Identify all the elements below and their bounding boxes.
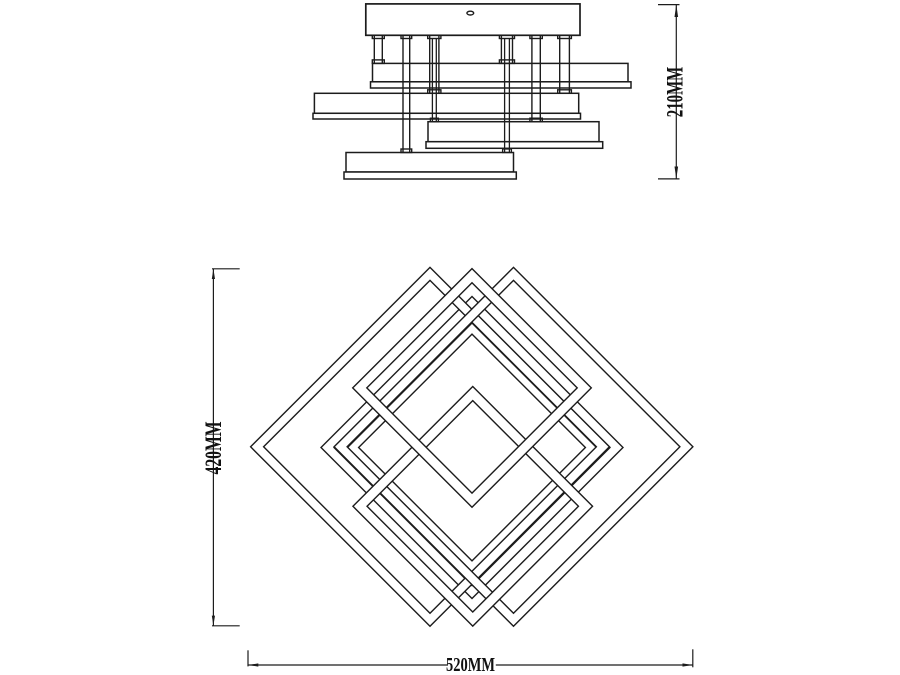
svg-text:420MM: 420MM	[201, 421, 226, 474]
svg-text:520MM: 520MM	[446, 655, 495, 675]
svg-text:210MM: 210MM	[663, 67, 688, 118]
